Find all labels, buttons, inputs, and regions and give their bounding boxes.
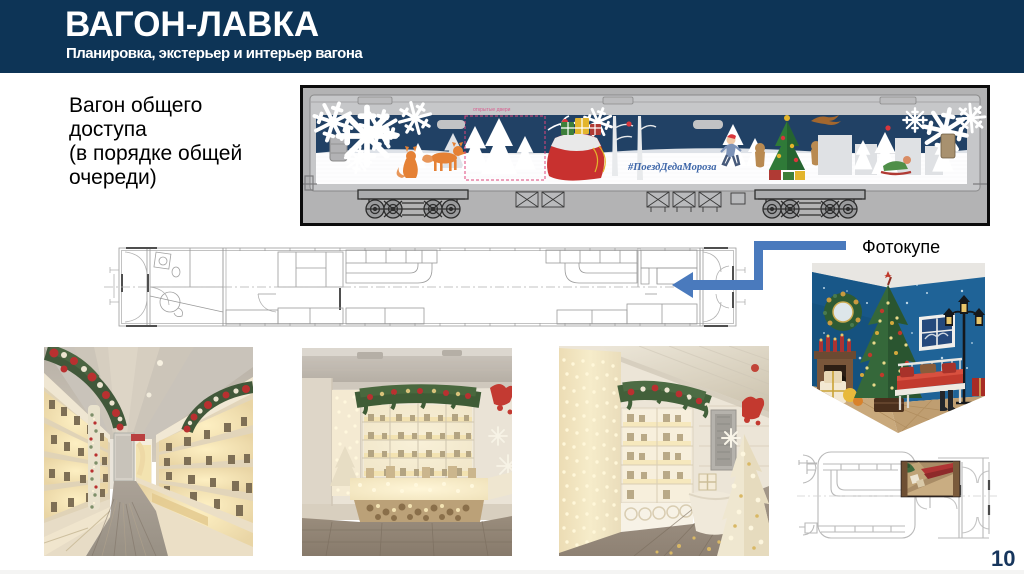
svg-text:#ПоездДедаМороза: #ПоездДедаМороза [627,162,717,173]
svg-text:открытые двери: открытые двери [473,107,511,113]
